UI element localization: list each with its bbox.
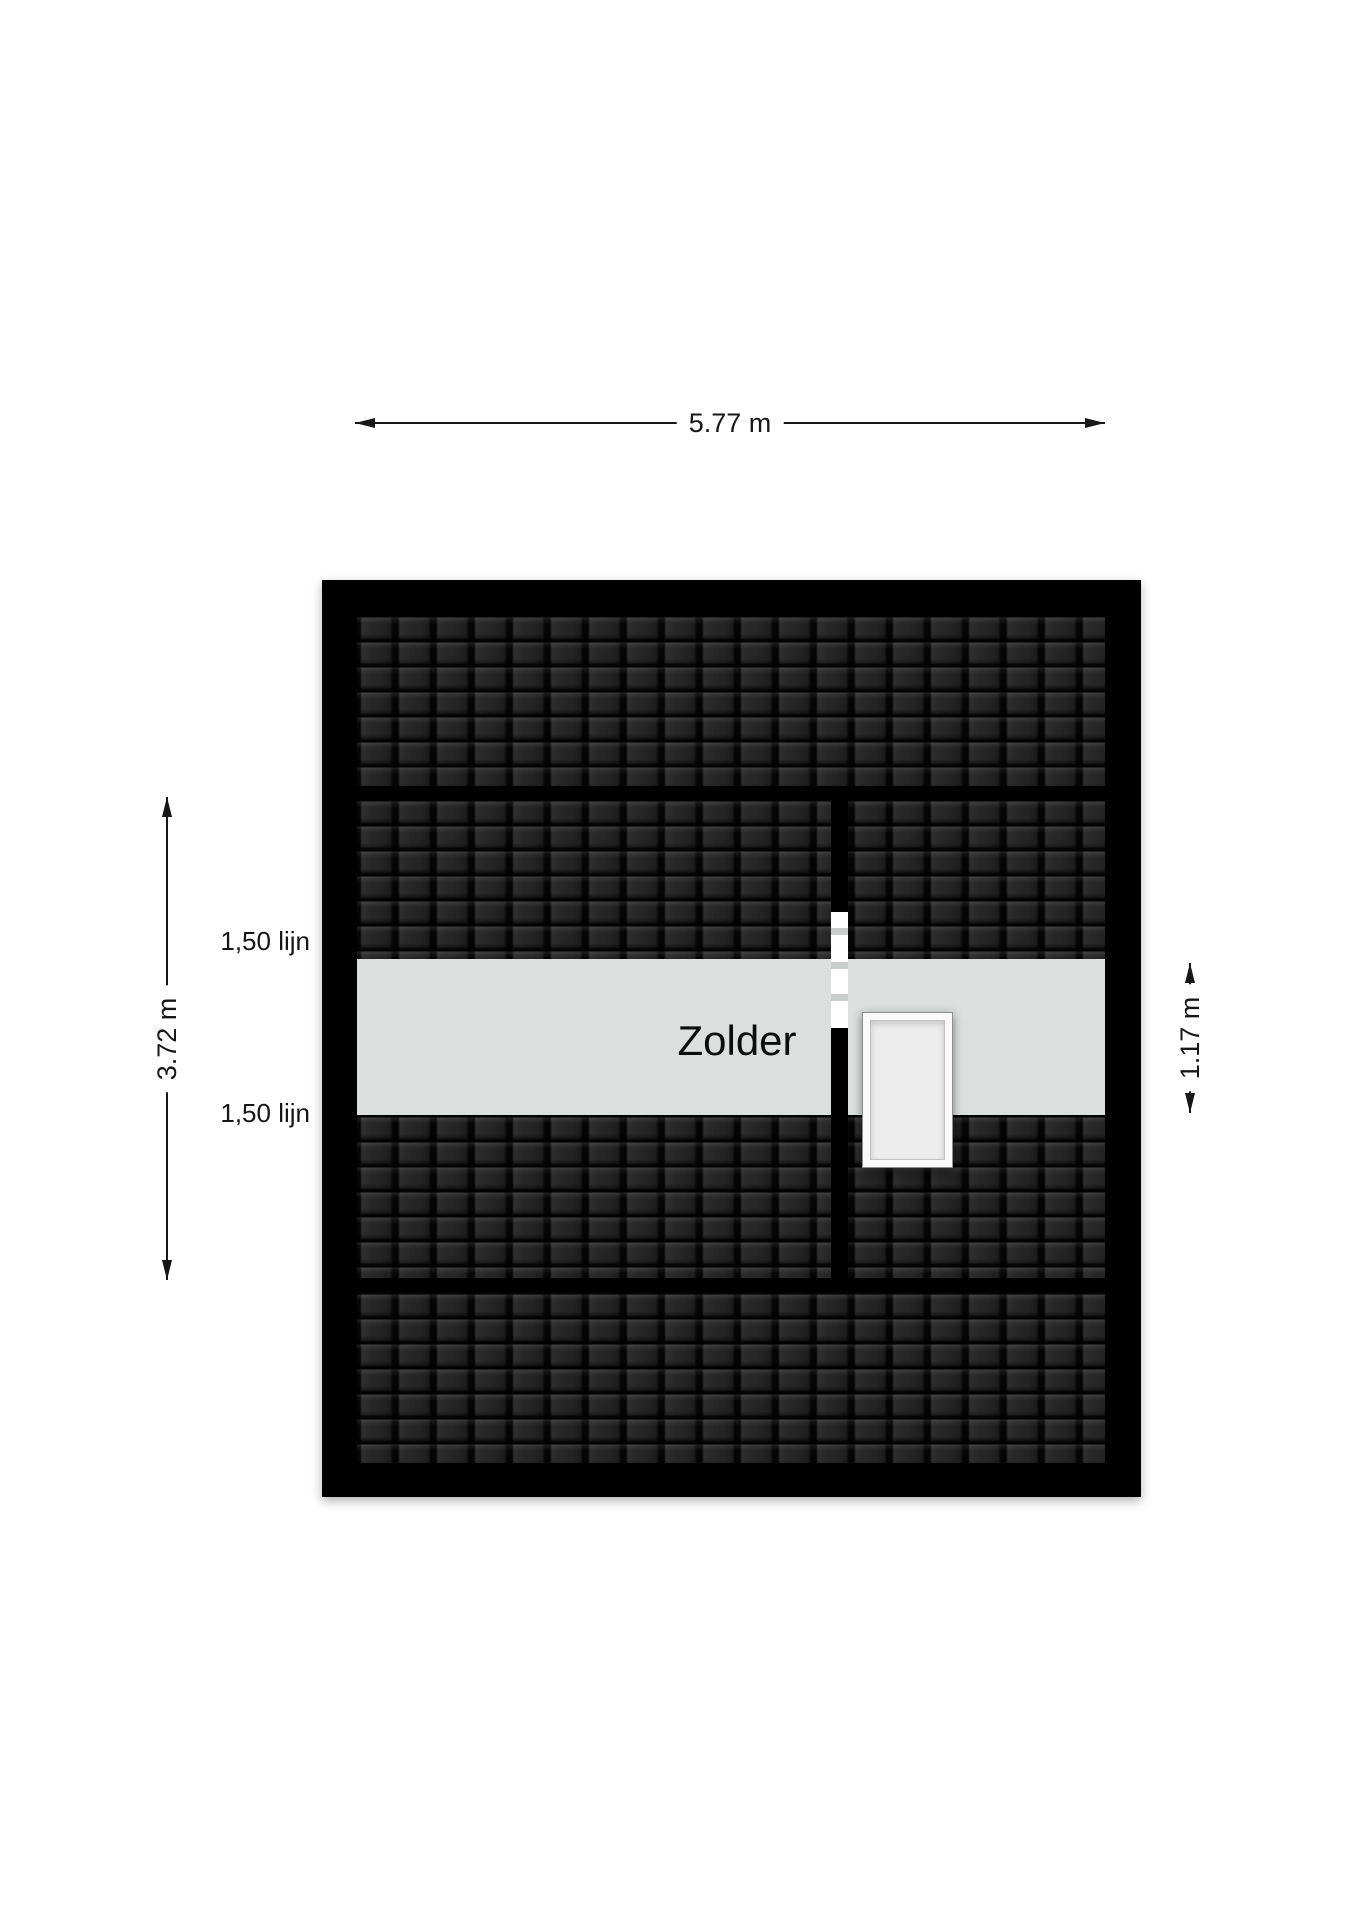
arrowhead-up-icon (162, 797, 172, 817)
arrowhead-down-icon (162, 1260, 172, 1280)
roof-tiles-top (357, 615, 1105, 786)
door-mark (831, 994, 848, 1001)
door-mark (831, 962, 848, 969)
room-label: Zolder (657, 1021, 817, 1061)
door-mark (831, 928, 848, 935)
skylight (862, 1012, 953, 1168)
arrowhead-left-icon (355, 418, 375, 428)
arrowhead-up-icon (1185, 963, 1195, 983)
height-line-label-bottom: 1,50 lijn (140, 1096, 310, 1130)
roof-tiles-middle-upper (357, 799, 1105, 959)
door-opening (831, 912, 848, 1028)
arrowhead-down-icon (1185, 1093, 1195, 1113)
floor-plan: Zolder (322, 580, 1141, 1497)
roof-tiles-bottom (357, 1292, 1105, 1463)
roof-tiles-middle-lower (357, 1115, 1105, 1278)
floorplan-page: 5.77 m 3.72 m 1,50 lijn 1,50 lijn Zolder… (0, 0, 1358, 1920)
dim-width-label: 5.77 m (677, 406, 784, 440)
arrowhead-right-icon (1085, 418, 1105, 428)
interior-wall (831, 799, 848, 1278)
dim-depth-label: 3.72 m (150, 986, 184, 1093)
height-line-label-top: 1,50 lijn (140, 924, 310, 958)
skylight-glass (870, 1020, 945, 1160)
dim-band-height-label: 1.17 m (1173, 985, 1207, 1092)
